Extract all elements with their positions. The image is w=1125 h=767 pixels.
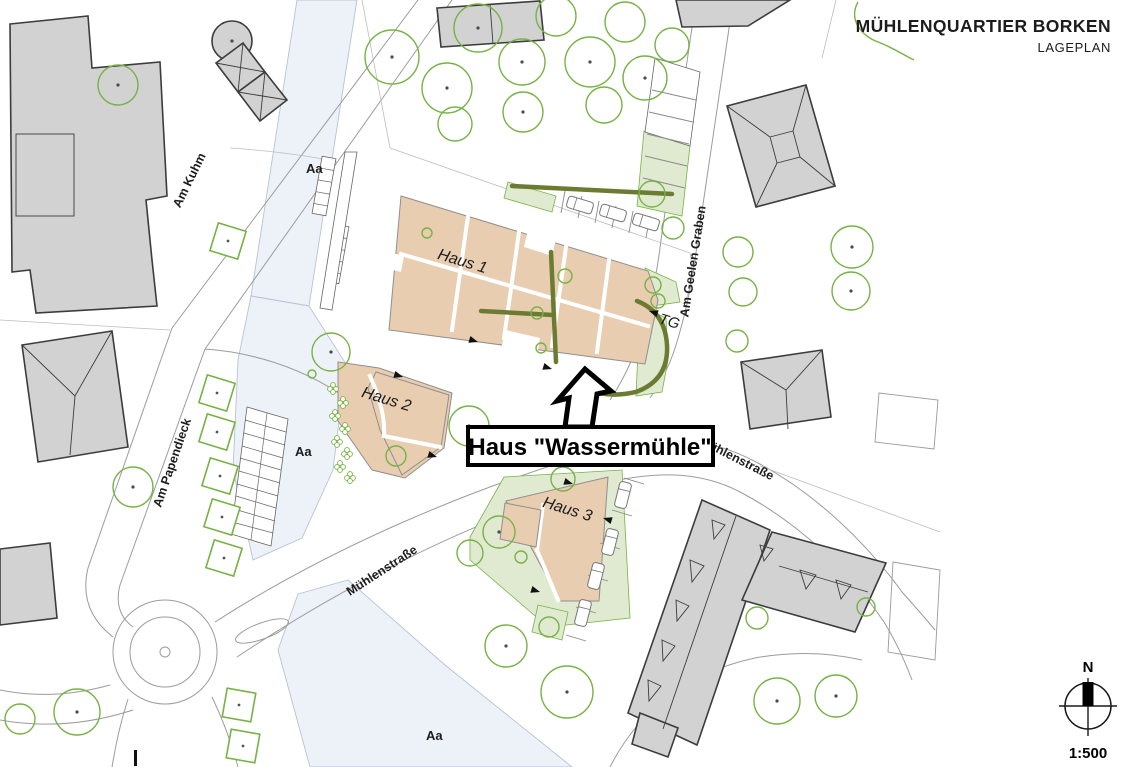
building-haus-1 — [385, 196, 658, 364]
title-block: MÜHLENQUARTIER BORKEN LAGEPLAN — [856, 16, 1111, 55]
north-label: N — [1083, 659, 1094, 676]
plan-subtitle: LAGEPLAN — [856, 40, 1111, 55]
river-label-aa-top: Aa — [306, 161, 323, 176]
building-top-right-small — [676, 0, 790, 27]
street-label-muehlenstrasse-lower: Mühlenstraße — [344, 543, 420, 599]
river-label-aa-middle: Aa — [295, 444, 312, 459]
building-outline-right — [875, 393, 938, 449]
building-right-hip-roof — [727, 85, 835, 207]
car-icon — [566, 195, 594, 214]
building-haus-2 — [338, 362, 452, 478]
street-label-am-kuhm: Am Kuhm — [170, 151, 208, 210]
car-icon — [632, 212, 660, 231]
site-plan-canvas: Haus 1 Haus 2 Haus 3 TG Am Kuhm Am Papen… — [0, 0, 1125, 767]
building-pair-top-center — [216, 43, 287, 121]
building-bottom-left — [0, 331, 128, 625]
map-tick — [134, 750, 137, 766]
callout-label: Haus "Wassermühle" — [468, 434, 711, 461]
building-outline-bottom-right — [888, 562, 940, 660]
building-muehlenstrasse-right — [741, 350, 831, 429]
river-label-aa-bottom: Aa — [426, 728, 443, 743]
scale-label: 1:500 — [1069, 745, 1107, 762]
building-top-left — [10, 16, 167, 313]
existing-buildings — [0, 0, 940, 757]
callout-arrow — [557, 369, 611, 427]
street-label-am-papendieck: Am Papendieck — [150, 416, 194, 509]
callout: Haus "Wassermühle" — [468, 369, 713, 465]
site-plan-map: Haus 1 Haus 2 Haus 3 TG Am Kuhm Am Papen… — [0, 0, 1125, 767]
roundabout — [113, 600, 217, 766]
plan-title: MÜHLENQUARTIER BORKEN — [856, 16, 1111, 37]
north-arrow: N 1:500 — [1059, 659, 1117, 762]
car-icon — [599, 203, 627, 222]
